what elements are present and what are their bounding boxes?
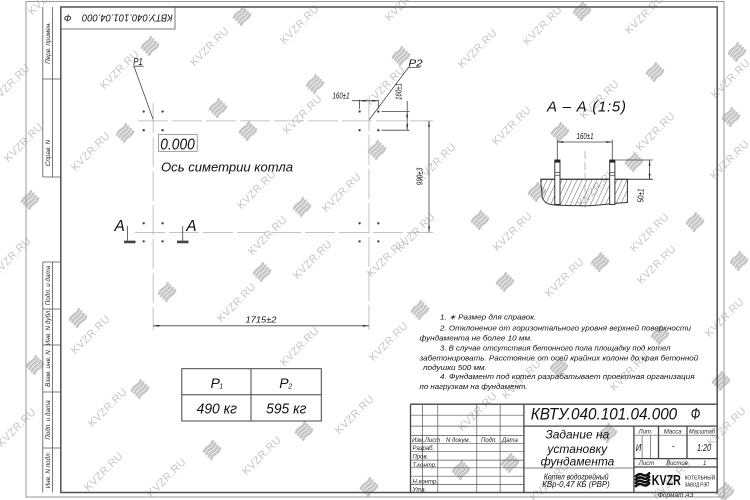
svg-text:Т.контр.: Т.контр. [413,463,437,469]
svg-text:подушки 500 мм.: подушки 500 мм. [423,363,487,372]
svg-text:A: A [114,218,125,235]
svg-text:И: И [636,443,642,454]
svg-text:Перв. примен.: Перв. примен. [45,22,52,64]
svg-text:Утв.: Утв. [412,488,427,494]
svg-text:Инв. N подл.: Инв. N подл. [44,452,52,489]
svg-text:2. Отклонение от горизонтально: 2. Отклонение от горизонтального уровня … [439,324,691,333]
svg-text:А – А (1:5): А – А (1:5) [546,99,626,116]
svg-text:Справ. N: Справ. N [45,139,52,166]
svg-text:990±3: 990±3 [415,168,425,186]
svg-text:N докум.: N докум. [446,438,470,444]
svg-text:Инв. N дубл.: Инв. N дубл. [44,309,52,345]
svg-text:КВр-0,47 КБ (РВР): КВр-0,47 КБ (РВР) [542,480,610,489]
svg-text:-: - [672,441,675,451]
svg-text:Листов: Листов [665,461,688,467]
svg-text:160±1: 160±1 [393,83,403,100]
svg-text:Лист: Лист [638,461,654,467]
svg-text:Лит.: Лит. [637,430,652,436]
svg-text:по нагрузкам на фундамент.: по нагрузкам на фундамент. [420,382,528,391]
svg-text:Масштаб: Масштаб [689,430,716,436]
svg-text:KVZR: KVZR [652,473,681,489]
svg-text:фундамента: фундамента [541,454,615,468]
svg-text:1715±2: 1715±2 [246,314,277,324]
svg-text:160±1: 160±1 [577,131,594,141]
svg-text:Ось симетрии котла: Ось симетрии котла [161,159,293,174]
svg-text:Подп. и дата: Подп. и дата [44,400,52,440]
svg-text:КВТУ.040.101.04.000 Ф: КВТУ.040.101.04.000 Ф [64,12,173,23]
svg-text:Масса: Масса [664,430,682,436]
svg-text:1: 1 [219,384,223,391]
svg-text:Н.контр.: Н.контр. [413,480,438,486]
svg-text:2: 2 [287,384,292,391]
svg-text:Дата: Дата [501,438,518,444]
svg-text:490 кг: 490 кг [197,401,237,417]
svg-text:3. В случае отсутствия бетонно: 3. В случае отсутствия бетонного пола пл… [440,344,671,353]
svg-text:P2: P2 [408,58,422,70]
svg-text:1: 1 [703,461,706,467]
svg-text:595 кг: 595 кг [266,401,306,417]
svg-text:Изм.Лист: Изм.Лист [412,438,440,444]
svg-text:A: A [185,218,196,235]
svg-text:Пров.: Пров. [413,455,429,461]
svg-text:0.000: 0.000 [160,136,195,153]
svg-text:4. Фундамент под котел разраба: 4. Фундамент под котел разрабатывает про… [440,372,695,381]
svg-text:ЗАВОД РЭП: ЗАВОД РЭП [685,482,710,488]
svg-text:160±1: 160±1 [333,91,350,101]
svg-text:КОТЕЛЬНЫЙ: КОТЕЛЬНЫЙ [685,473,716,481]
svg-text:Взам. инв. N: Взам. инв. N [45,350,52,387]
svg-text:1. ∗ Размер для справок.: 1. ∗ Размер для справок. [440,313,536,322]
svg-text:Подп. и дата: Подп. и дата [44,265,52,305]
svg-text:Разраб.: Разраб. [413,446,435,452]
svg-text:фундамента не более 10 мм.: фундамента не более 10 мм. [420,334,533,343]
svg-text:50±1: 50±1 [636,188,646,202]
svg-text:Ф: Ф [691,405,701,424]
svg-text:Формат А3: Формат А3 [658,492,694,499]
svg-text:КВТУ.040.101.04.000: КВТУ.040.101.04.000 [531,405,678,424]
svg-text:забетонировать. Расстояние от: забетонировать. Расстояние от осей крайн… [418,354,698,363]
svg-text:Подп.: Подп. [481,438,497,444]
svg-text:P1: P1 [133,56,143,68]
svg-text:1:20: 1:20 [697,443,711,454]
svg-text:Задание на: Задание на [545,428,609,442]
